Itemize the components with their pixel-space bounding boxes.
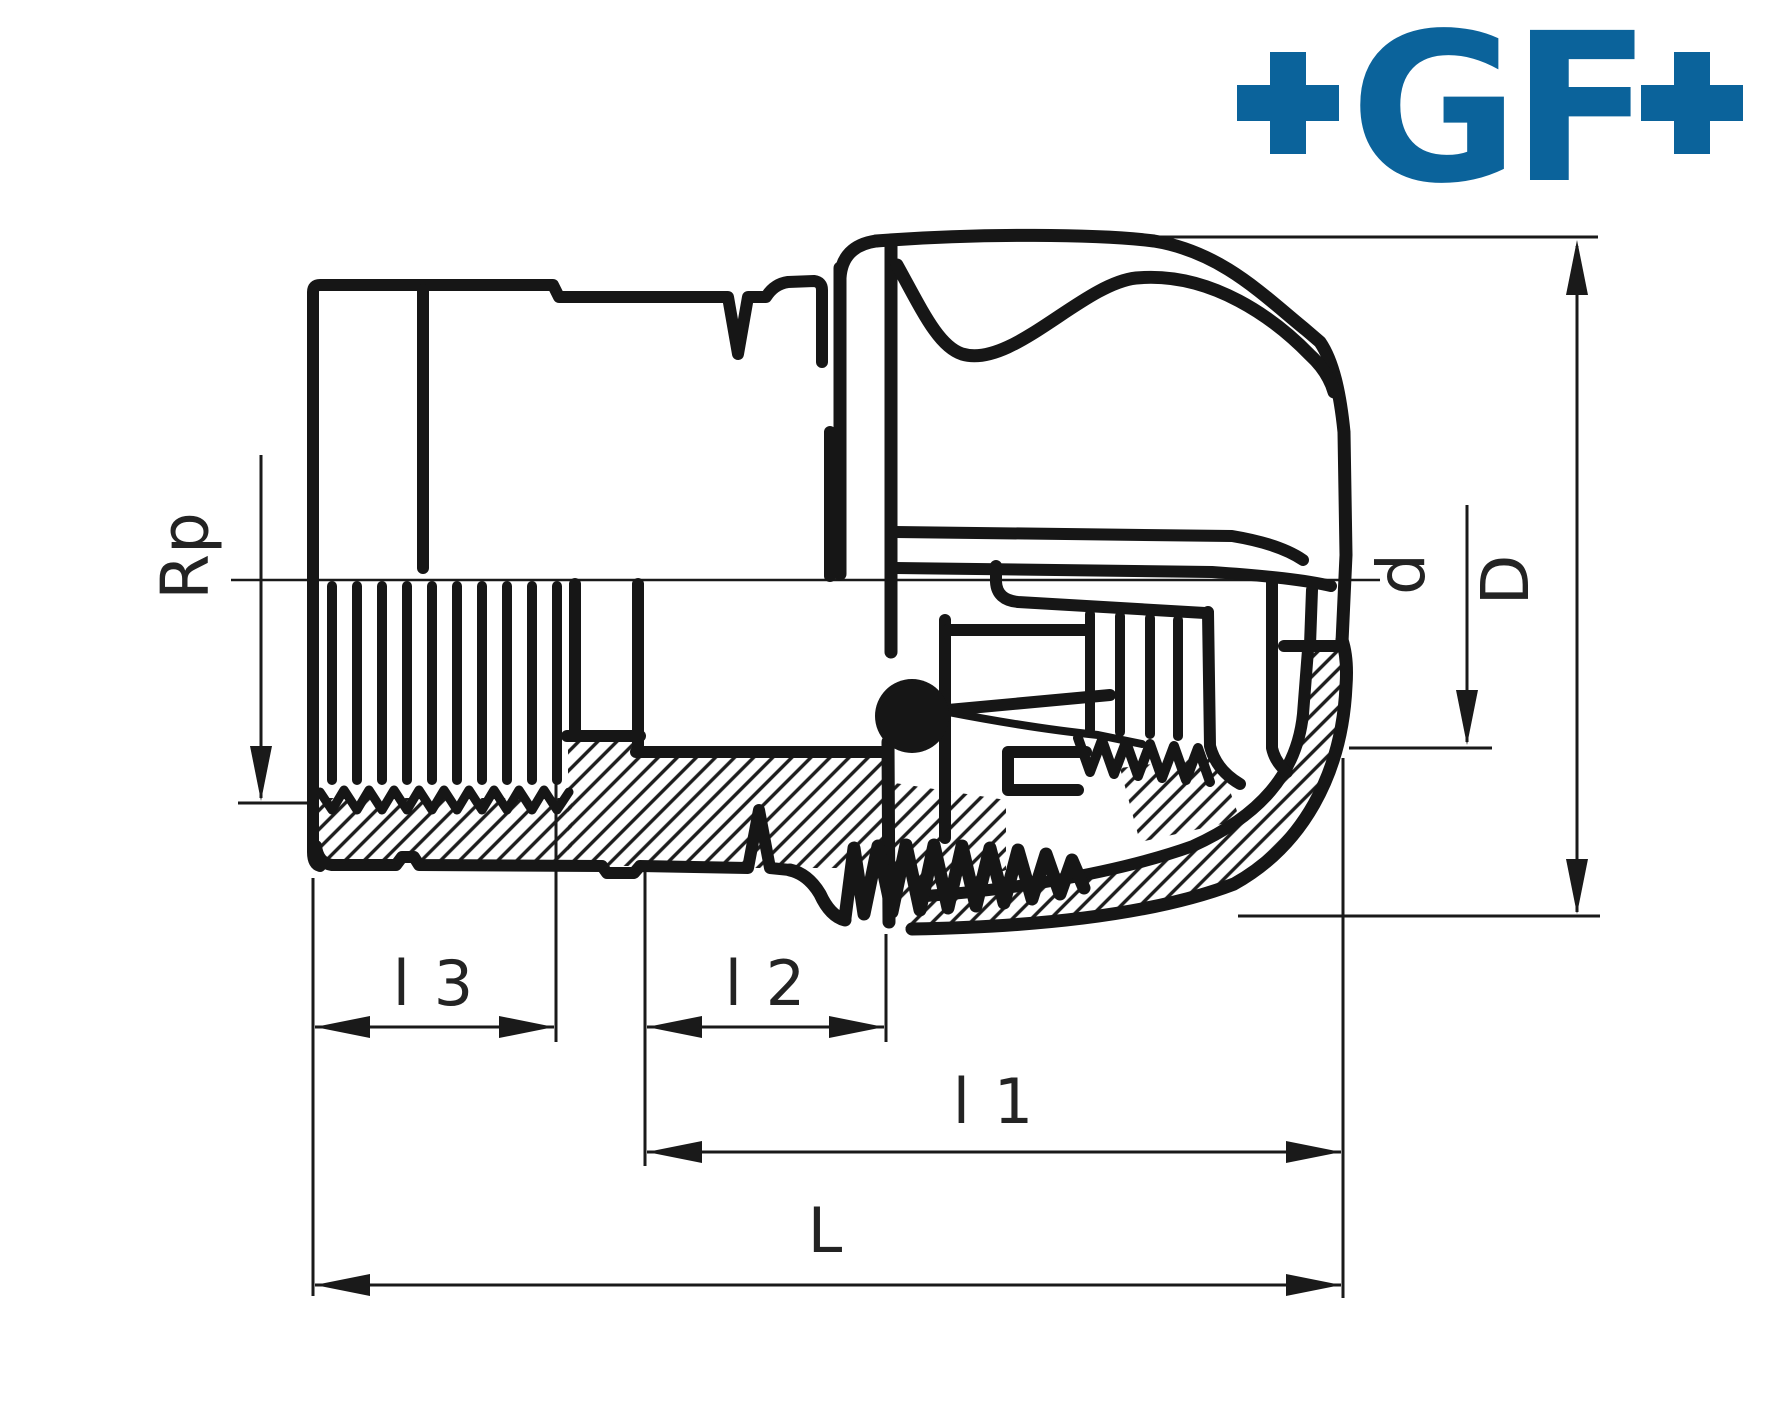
o-ring — [875, 679, 949, 753]
seal-washer-line — [948, 712, 1142, 744]
cap-shoulder-lower — [895, 568, 1331, 586]
dim-label-L: L — [808, 1194, 845, 1267]
arrowhead-D-bottom — [1566, 859, 1588, 914]
dim-label-l3: l 3 — [393, 947, 475, 1020]
collet-outer-wall — [1208, 612, 1240, 784]
logo-plus-left-icon — [1237, 52, 1339, 154]
technical-drawing: Rp d D l 3 l 2 l 1 L GF — [0, 0, 1772, 1413]
arrowhead-l2-left — [647, 1016, 702, 1038]
arrowhead-l1-right — [1286, 1141, 1341, 1163]
arrowhead-L-right — [1286, 1274, 1341, 1296]
collet-lower-channel — [1008, 752, 1086, 790]
cap-mouth-wall — [1310, 590, 1312, 645]
cap-inner-right-wall — [1272, 578, 1287, 772]
arrowhead-l3-right — [499, 1016, 554, 1038]
logo-letters: GF — [1350, 0, 1644, 229]
cap-grip-wave — [897, 265, 1334, 392]
arrowhead-d — [1456, 690, 1478, 745]
arrowhead-rp — [250, 746, 272, 801]
drawing-page: Rp d D l 3 l 2 l 1 L GF — [0, 0, 1772, 1413]
dim-label-l1: l 1 — [953, 1065, 1035, 1138]
dimension-l1 — [647, 1141, 1341, 1163]
dimension-D — [1566, 240, 1588, 914]
dim-label-rp: Rp — [147, 512, 224, 600]
dimension-d — [1456, 505, 1478, 745]
claw-curve — [790, 870, 845, 920]
dim-label-l2: l 2 — [725, 947, 807, 1020]
dim-label-d: d — [1363, 553, 1440, 595]
arrowhead-L-left — [315, 1274, 370, 1296]
dimension-L — [315, 1274, 1341, 1296]
cap-shoulder-upper — [895, 532, 1303, 560]
arrowhead-l1-left — [647, 1141, 702, 1163]
dimension-rp — [250, 455, 272, 801]
dim-label-D: D — [1467, 555, 1544, 606]
arrowhead-D-top — [1566, 240, 1588, 295]
logo-plus-right-icon — [1641, 52, 1743, 154]
gf-logo: GF — [1237, 0, 1743, 229]
hatch-shoulder-wall — [568, 740, 640, 866]
arrowhead-l2-right — [829, 1016, 884, 1038]
arrowhead-l3-left — [315, 1016, 370, 1038]
thread-lines — [320, 586, 569, 810]
cap-left-corner — [840, 241, 876, 278]
